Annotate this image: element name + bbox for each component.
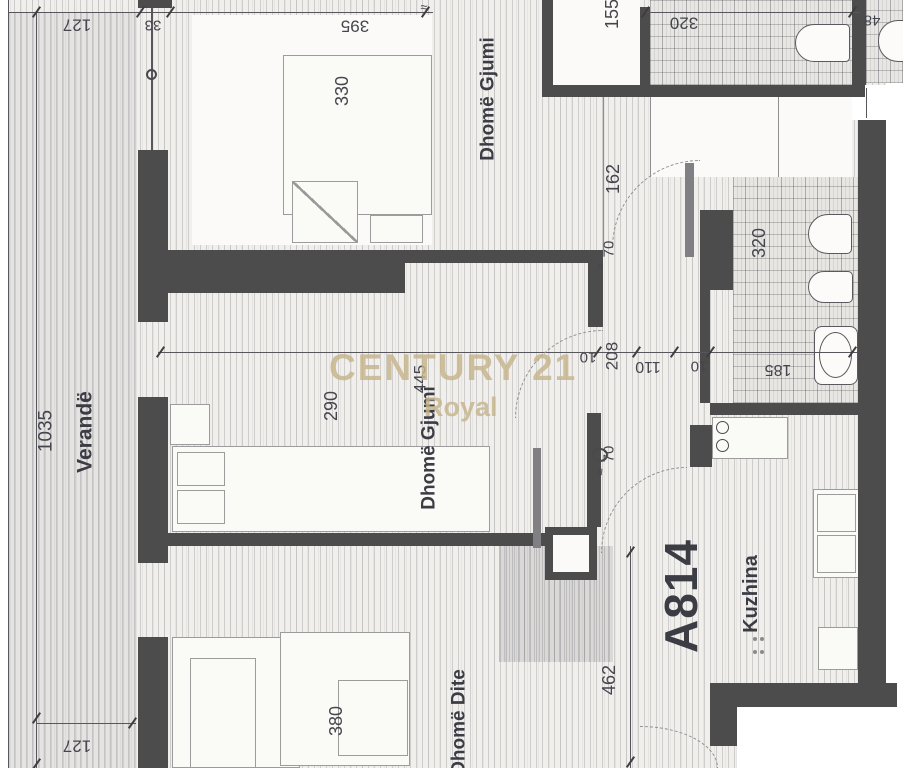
nightstand: [170, 404, 210, 445]
wall-segment: [710, 403, 865, 415]
appliance-dot: [760, 650, 764, 654]
dim-380: 380: [327, 706, 345, 736]
dim-1035: 1035: [37, 410, 56, 452]
dimension-line: [36, 723, 136, 724]
window-joint-icon: [146, 69, 157, 80]
dim-320-bath: 320: [750, 228, 768, 258]
dim-320-top: 320: [670, 15, 698, 32]
approx-mark: ≈: [420, 1, 427, 14]
kitchen-unit: [818, 627, 858, 670]
door-leaf: [533, 448, 541, 548]
apartment-number: A814: [658, 539, 704, 653]
dim-290: 290: [322, 391, 340, 421]
dim-70-bottom: 70: [602, 446, 617, 463]
wall-segment: [542, 85, 865, 97]
dim-208: 208: [604, 342, 621, 370]
toilet: [808, 214, 852, 254]
room-label-bedroom-top: Dhomë Gjumi: [479, 37, 498, 161]
wall-segment: [138, 150, 168, 322]
coffee-table: [338, 680, 408, 756]
dimension-line: [8, 12, 433, 13]
room-label-veranda: Verandë: [75, 391, 96, 473]
dim-127-bottom: 127: [63, 738, 91, 755]
dim-395: 395: [341, 18, 369, 35]
approx-mark: ≈: [594, 468, 607, 475]
dim-127-top: 127: [63, 17, 91, 34]
dim-155: 155: [603, 0, 621, 29]
outside-area: [886, 0, 903, 768]
toilet: [795, 24, 850, 62]
dimension-line: [36, 12, 37, 768]
wall-segment: [588, 263, 603, 327]
appliance-dot: [753, 650, 757, 654]
dim-110: 110: [635, 358, 661, 374]
duct-shaft-void: [553, 535, 589, 572]
window-line: [866, 88, 867, 118]
sink-burner-icon: [716, 439, 729, 452]
floor-plan: Verandë Dhomë Gjumi Dhomë Gjumi Dhomë Di…: [0, 0, 903, 768]
sink-burner-icon: [716, 421, 729, 434]
stove: [817, 494, 856, 532]
wall-segment: [640, 7, 650, 85]
outside-area: [737, 707, 903, 768]
approx-mark: ≈: [594, 263, 607, 270]
dim-462: 462: [600, 665, 618, 695]
dim-162: 162: [604, 164, 622, 194]
dim-70-top: 70: [602, 241, 617, 258]
wall-segment: [542, 0, 553, 97]
nightstand: [292, 181, 358, 243]
watermark-brand: CENTURY 21: [329, 349, 577, 386]
shower-divider: [778, 97, 779, 177]
pillow: [177, 490, 225, 524]
room-label-living: Dhomë Dite: [450, 669, 469, 768]
wall-segment: [700, 290, 710, 403]
dim-48: 48: [864, 13, 881, 28]
dimension-line: [630, 546, 631, 768]
appliance-dot: [753, 637, 757, 641]
sofa-cushion: [190, 658, 256, 768]
wall-segment: [690, 425, 712, 467]
appliance-dot: [760, 637, 764, 641]
watermark-agency: Royal: [424, 394, 498, 421]
pillow: [177, 452, 225, 486]
wall-segment: [700, 210, 733, 290]
dim-185: 185: [765, 361, 792, 377]
bidet: [808, 271, 853, 303]
bed-footboard: [370, 215, 423, 243]
veranda-floor: [9, 12, 137, 768]
paper-edge-line: [8, 0, 9, 768]
sink: [817, 535, 856, 573]
wall-segment: [405, 250, 603, 263]
wall-segment: [138, 637, 168, 768]
wall-segment: [710, 683, 897, 707]
wall-segment: [710, 683, 737, 746]
zone-edge: [650, 97, 651, 177]
wall-segment: [163, 533, 547, 546]
dim-10-left: 10: [580, 350, 597, 365]
wall-segment: [160, 250, 405, 293]
dim-33: 33: [145, 18, 162, 33]
dim-10-right: 10: [691, 359, 708, 374]
closet: [553, 0, 640, 85]
room-label-kitchen: Kuzhina: [741, 555, 761, 633]
dim-330: 330: [333, 76, 351, 106]
sink-bowl: [819, 332, 852, 378]
